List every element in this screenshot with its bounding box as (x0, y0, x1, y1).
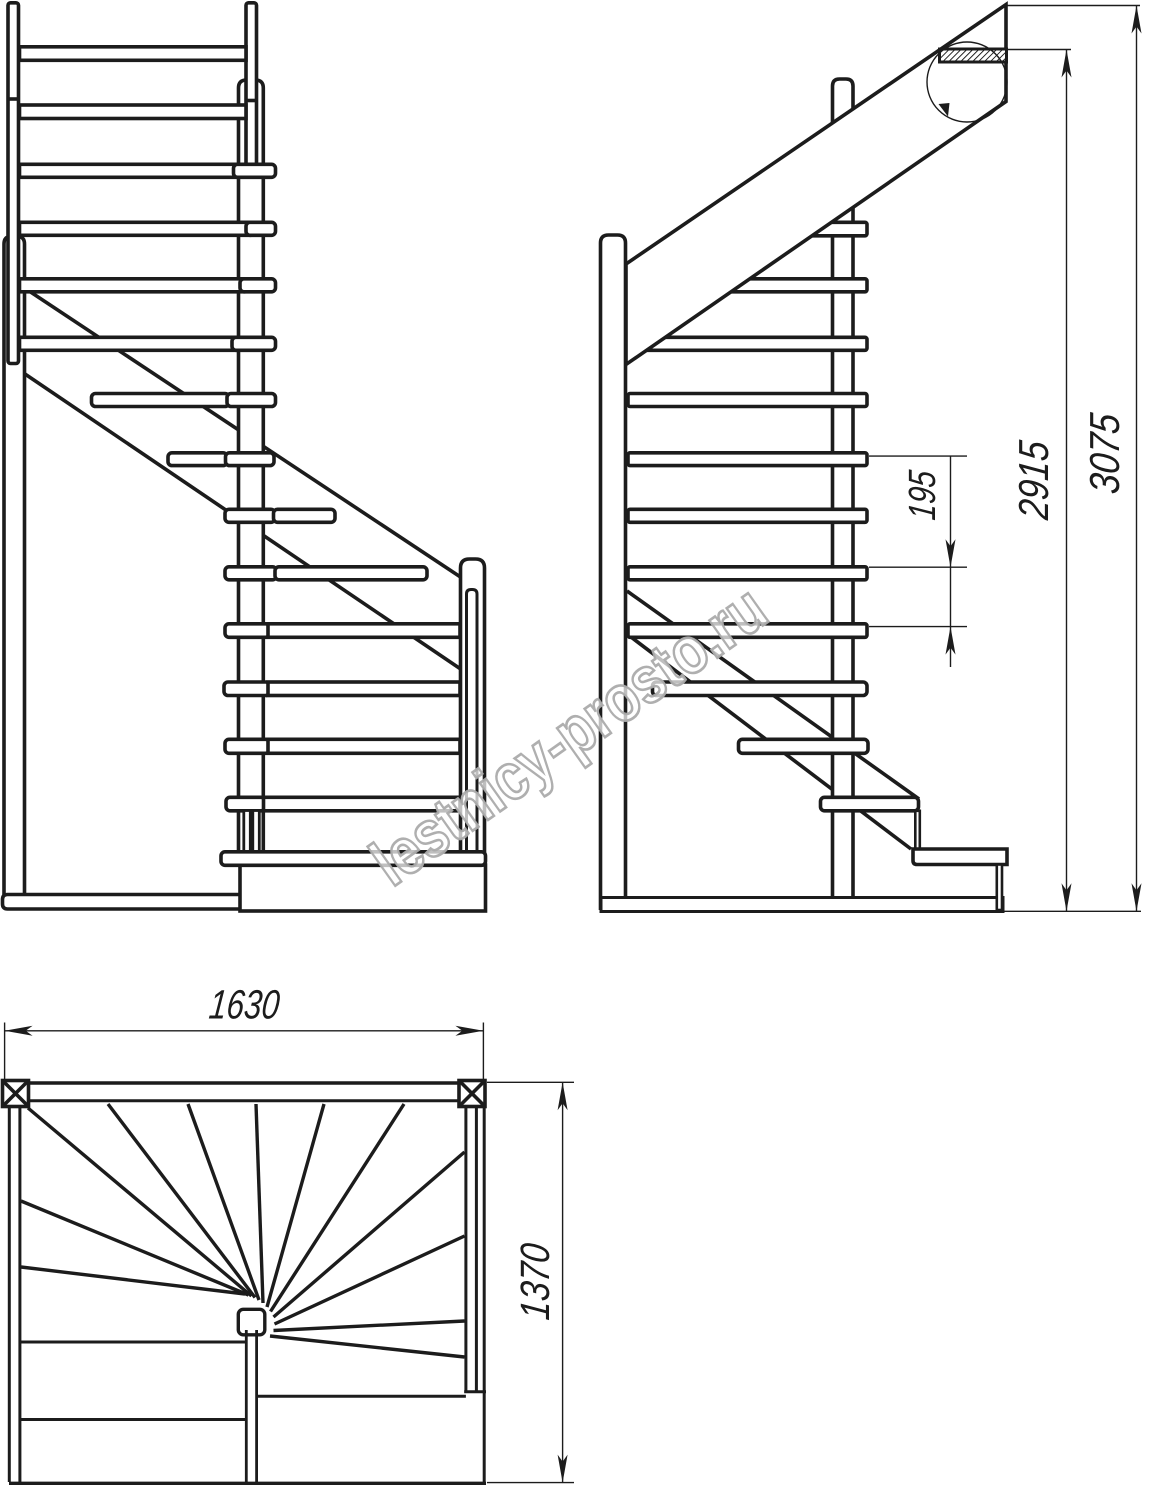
svg-text:3075: 3075 (1081, 411, 1128, 496)
svg-text:195: 195 (902, 468, 944, 522)
svg-text:2915: 2915 (1010, 438, 1057, 522)
svg-text:1630: 1630 (207, 982, 282, 1028)
svg-text:1370: 1370 (512, 1241, 558, 1322)
